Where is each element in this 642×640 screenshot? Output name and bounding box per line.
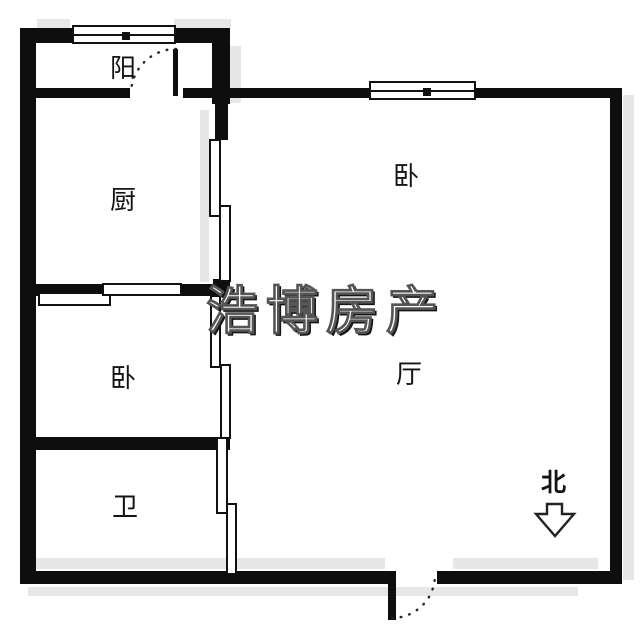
entry-door-swing-arc (392, 576, 435, 618)
balcony-door-swing-arc (131, 49, 176, 93)
north-arrow-icon (536, 504, 574, 536)
watermark-text: 浩博房产 (206, 284, 466, 341)
floor-plan: 阳 厨 卧 卧 厅 卫 北 浩博房产 (0, 0, 642, 640)
